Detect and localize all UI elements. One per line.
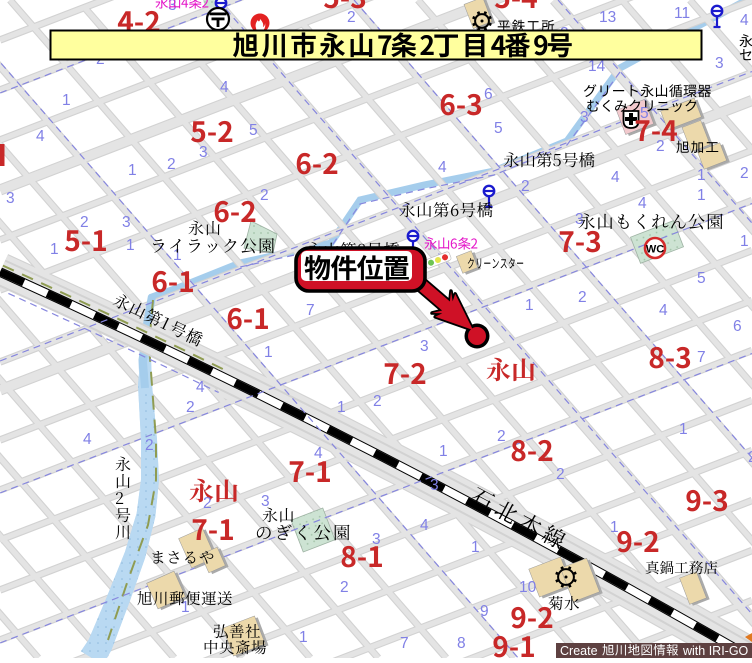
svg-text:6: 6 (484, 86, 493, 103)
svg-text:3: 3 (430, 477, 439, 494)
svg-text:1: 1 (525, 297, 534, 314)
svg-text:4: 4 (659, 302, 668, 319)
svg-text:1: 1 (471, 539, 480, 556)
svg-text:2: 2 (748, 449, 752, 466)
svg-text:5: 5 (249, 122, 258, 139)
svg-text:1: 1 (439, 443, 448, 460)
svg-text:4: 4 (314, 445, 323, 462)
svg-text:2: 2 (656, 138, 665, 155)
svg-text:8: 8 (457, 635, 466, 652)
svg-text:with IRI-GO: with IRI-GO (682, 644, 749, 658)
svg-text:1: 1 (128, 162, 137, 179)
svg-text:1: 1 (126, 237, 135, 254)
svg-text:3: 3 (372, 531, 381, 548)
svg-text:14: 14 (588, 58, 606, 75)
svg-text:11: 11 (674, 5, 690, 22)
svg-text:1: 1 (264, 344, 273, 361)
svg-text:3: 3 (715, 55, 724, 72)
svg-text:4: 4 (420, 517, 429, 534)
svg-text:2: 2 (521, 178, 530, 195)
svg-text:Create: Create (560, 644, 598, 658)
svg-text:2: 2 (80, 214, 89, 231)
svg-text:3: 3 (261, 493, 270, 510)
svg-text:4: 4 (638, 195, 647, 212)
svg-text:4: 4 (36, 128, 45, 145)
svg-text:3: 3 (575, 211, 584, 228)
svg-text:3: 3 (420, 338, 429, 355)
svg-text:1: 1 (299, 629, 308, 646)
svg-text:4: 4 (438, 159, 447, 176)
svg-text:2: 2 (167, 156, 176, 173)
svg-text:1: 1 (740, 233, 749, 250)
svg-text:1: 1 (697, 167, 706, 184)
svg-text:3: 3 (122, 214, 131, 231)
svg-text:1: 1 (62, 92, 71, 109)
svg-text:3: 3 (199, 144, 208, 161)
svg-text:7: 7 (306, 302, 315, 319)
svg-text:4: 4 (611, 169, 620, 186)
svg-text:2: 2 (203, 495, 212, 512)
svg-text:1: 1 (697, 187, 706, 204)
svg-text:2: 2 (373, 393, 382, 410)
svg-text:1: 1 (610, 519, 619, 536)
svg-text:2: 2 (556, 466, 565, 483)
svg-text:2: 2 (497, 428, 506, 445)
svg-text:1: 1 (50, 241, 59, 258)
svg-text:10: 10 (519, 579, 537, 596)
svg-text:2: 2 (740, 165, 749, 182)
svg-text:5: 5 (494, 120, 503, 137)
svg-text:2: 2 (260, 187, 269, 204)
svg-text:3: 3 (6, 190, 15, 207)
svg-text:1: 1 (337, 399, 346, 416)
svg-text:4: 4 (196, 379, 205, 396)
svg-text:1: 1 (679, 421, 688, 438)
svg-text:3: 3 (580, 109, 589, 126)
svg-text:2: 2 (186, 399, 195, 416)
svg-text:2: 2 (340, 579, 349, 596)
svg-text:13: 13 (599, 9, 616, 26)
svg-text:4: 4 (83, 431, 92, 448)
svg-text:2: 2 (145, 437, 154, 454)
svg-text:5: 5 (697, 270, 706, 287)
svg-text:2: 2 (578, 289, 587, 306)
svg-text:7: 7 (400, 635, 409, 652)
svg-text:9: 9 (480, 603, 489, 620)
svg-text:7: 7 (697, 349, 706, 366)
svg-text:4: 4 (220, 79, 229, 96)
svg-text:4: 4 (740, 12, 749, 29)
svg-text:2: 2 (347, 9, 356, 26)
svg-text:6: 6 (733, 318, 742, 335)
svg-text:5: 5 (640, 105, 649, 122)
svg-text:WC: WC (646, 244, 664, 256)
